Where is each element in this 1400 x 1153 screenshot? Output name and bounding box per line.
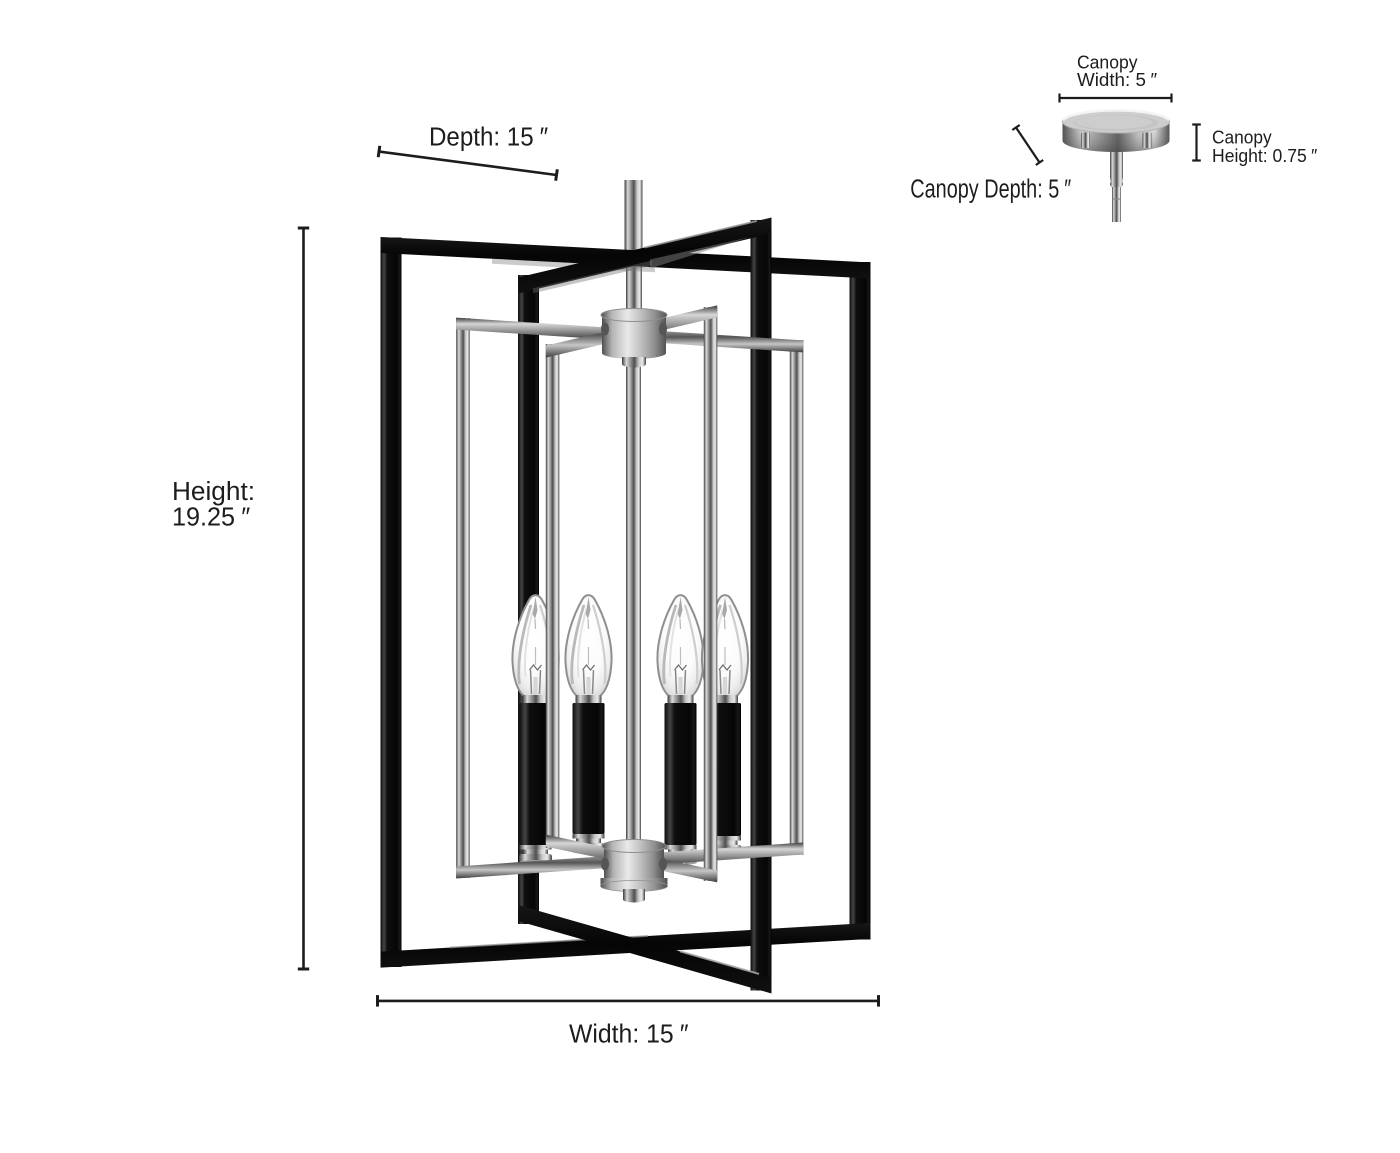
svg-text:Canopy Depth: 5 ″: Canopy Depth: 5 ″ — [910, 176, 1071, 204]
svg-text:Height: 0.75 ″: Height: 0.75 ″ — [1212, 145, 1318, 166]
svg-text:19.25 ″: 19.25 ″ — [172, 504, 250, 532]
svg-text:Height:: Height: — [172, 478, 255, 506]
svg-text:Depth: 15 ″: Depth: 15 ″ — [429, 124, 548, 152]
svg-text:Width: 5 ″: Width: 5 ″ — [1077, 69, 1158, 90]
svg-text:Width: 15 ″: Width: 15 ″ — [569, 1021, 688, 1049]
